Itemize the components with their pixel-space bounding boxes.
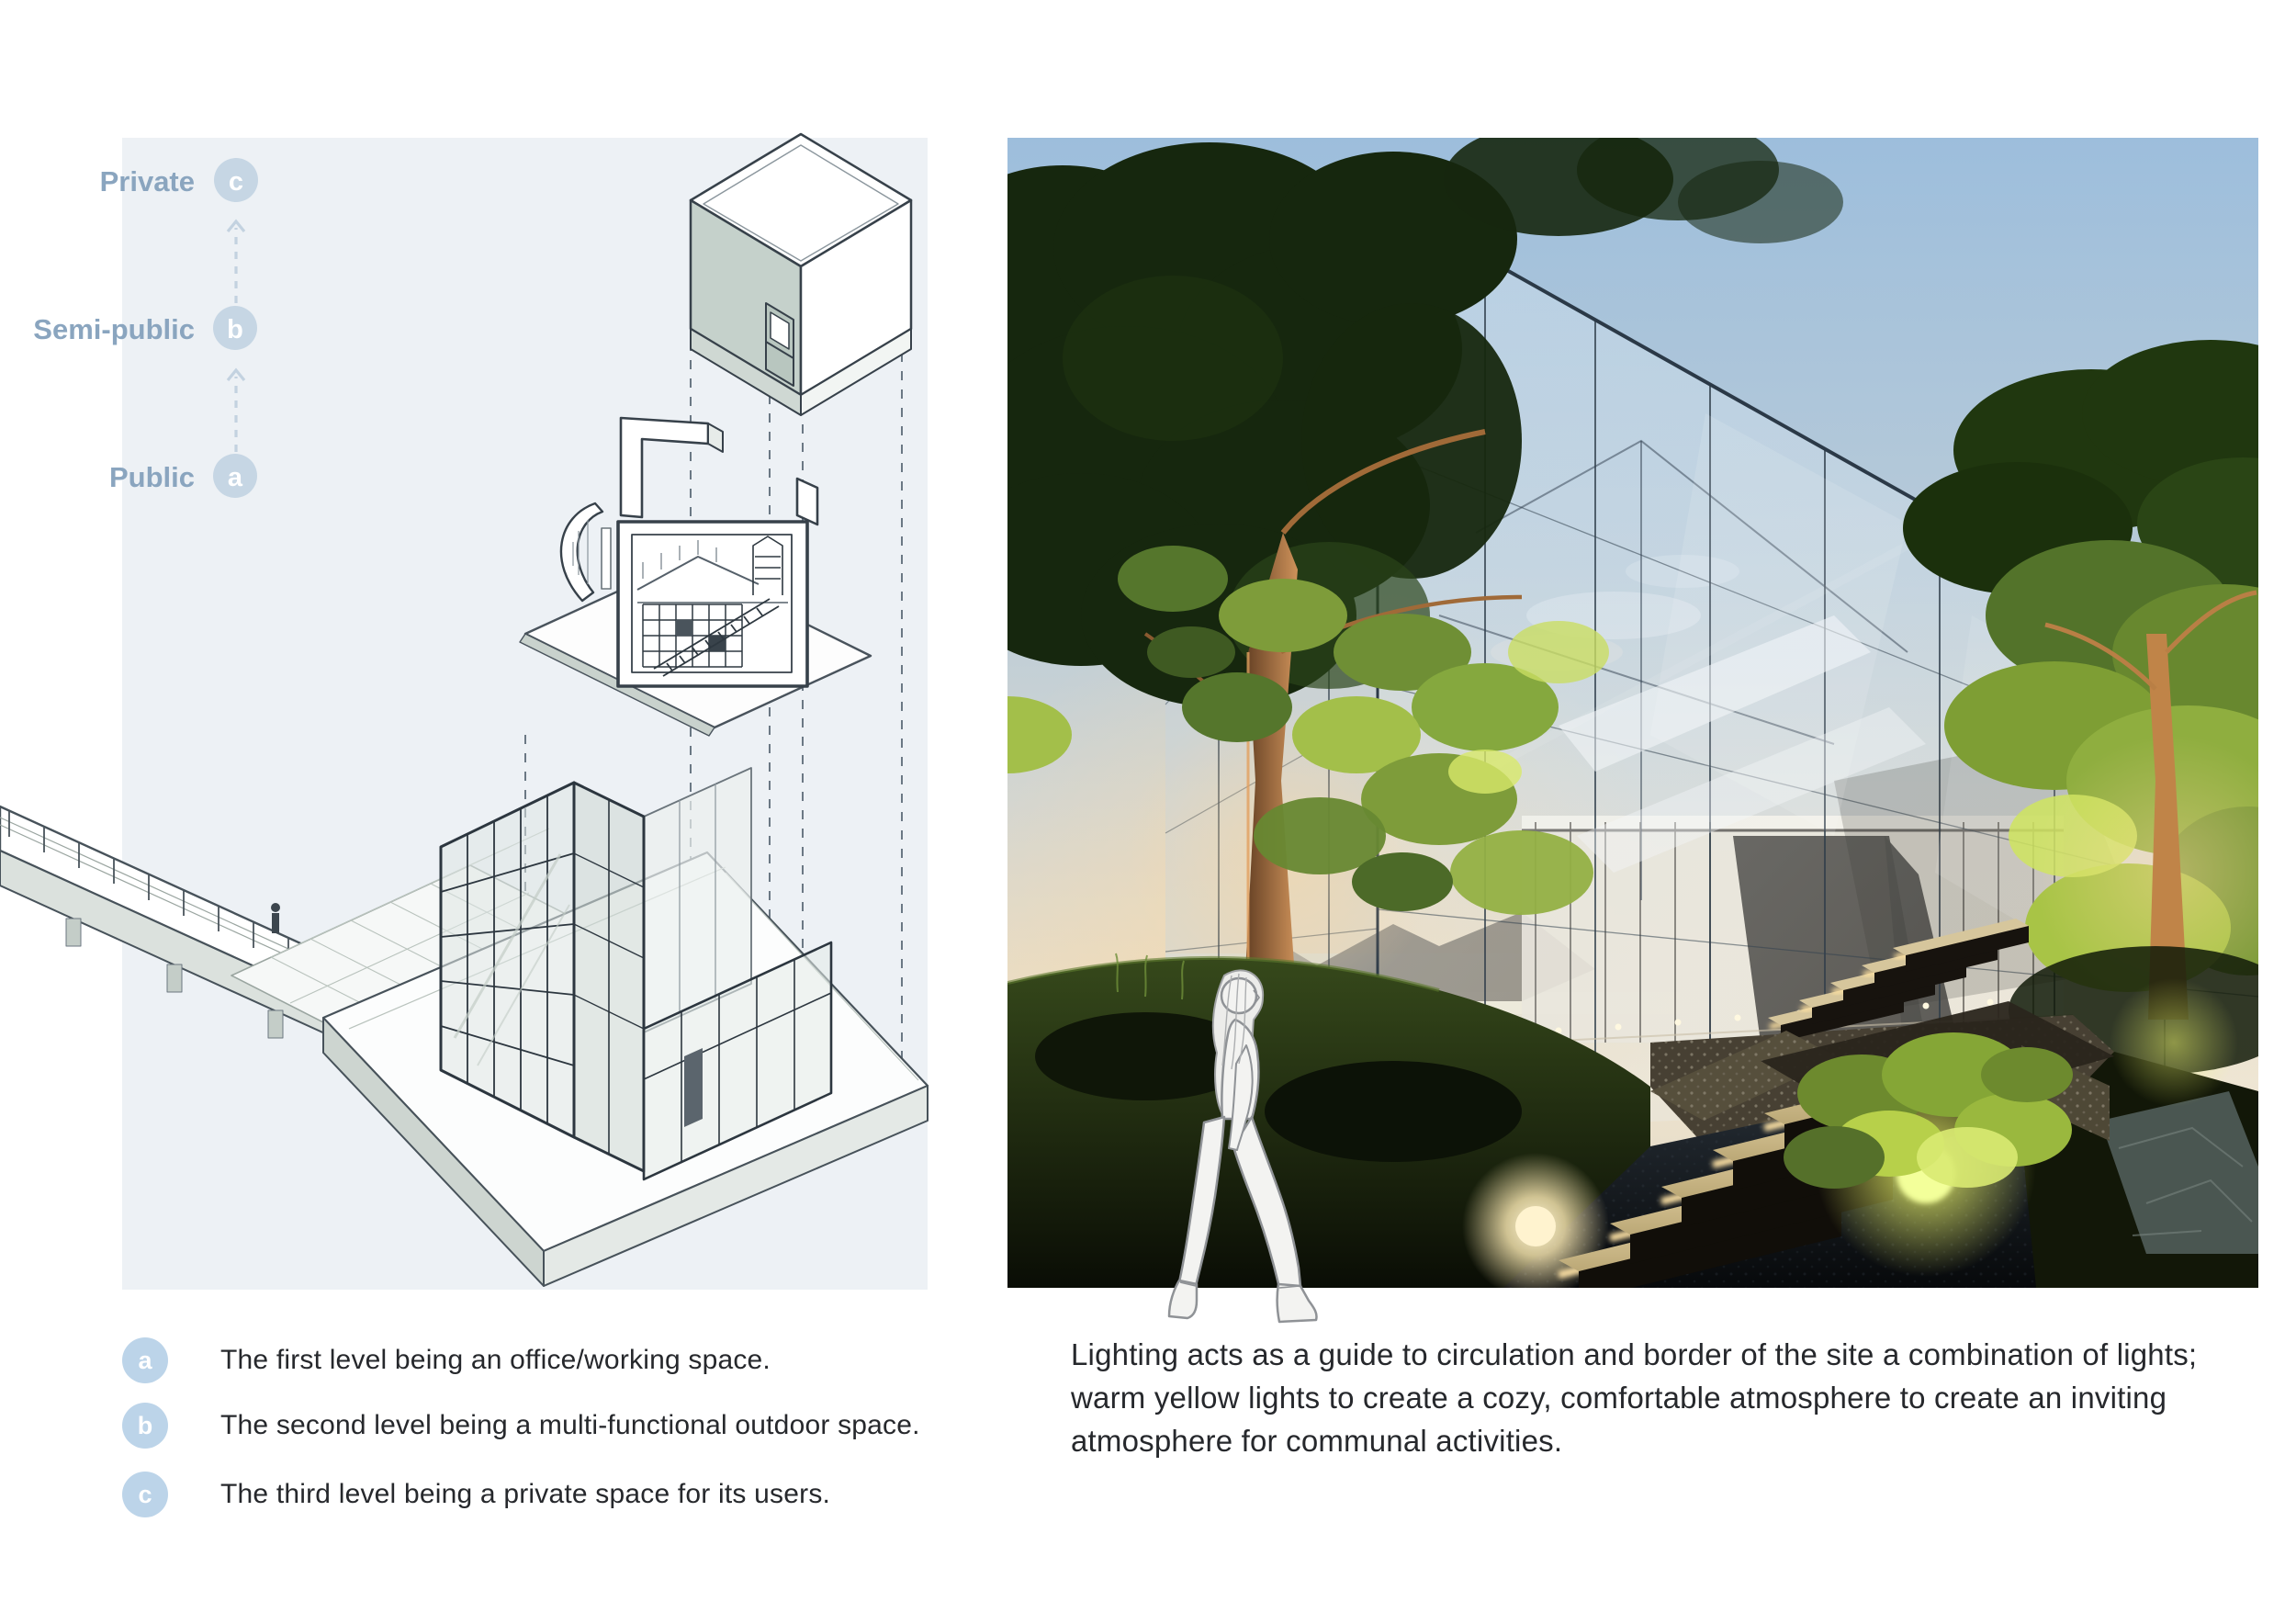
circle-c-letter: c xyxy=(229,167,243,197)
legend-text-c: The third level being a private space fo… xyxy=(220,1479,830,1510)
legend-circle-a: a xyxy=(122,1337,168,1383)
tiny-figure-icon xyxy=(271,903,280,912)
photo-caption: Lighting acts as a guide to circulation … xyxy=(1071,1334,2237,1463)
page: Private c Semi-public b Public a xyxy=(0,0,2296,1624)
legend-letter-c: c xyxy=(138,1481,152,1509)
legend-text-a: The first level being an office/working … xyxy=(220,1345,771,1376)
legend-circle-b: b xyxy=(122,1403,168,1449)
legend-letter-a: a xyxy=(138,1347,152,1375)
entry-door xyxy=(684,1048,703,1127)
label-private: Private xyxy=(100,165,195,197)
legend-text-b: The second level being a multi-functiona… xyxy=(220,1410,920,1441)
exploded-axon-diagram: Private c Semi-public b Public a xyxy=(0,0,974,1341)
legend-item-a: a The first level being an office/workin… xyxy=(122,1337,771,1383)
circle-a-letter: a xyxy=(228,463,243,492)
legend-circle-c: c xyxy=(122,1472,168,1517)
label-semi-public: Semi-public xyxy=(33,313,195,345)
legend-item-b: b The second level being a multi-functio… xyxy=(122,1403,920,1449)
circle-b-letter: b xyxy=(227,315,243,344)
legend-item-c: c The third level being a private space … xyxy=(122,1472,830,1517)
label-public: Public xyxy=(109,461,195,493)
legend-letter-b: b xyxy=(138,1412,153,1440)
photo-render xyxy=(1007,138,2258,1332)
